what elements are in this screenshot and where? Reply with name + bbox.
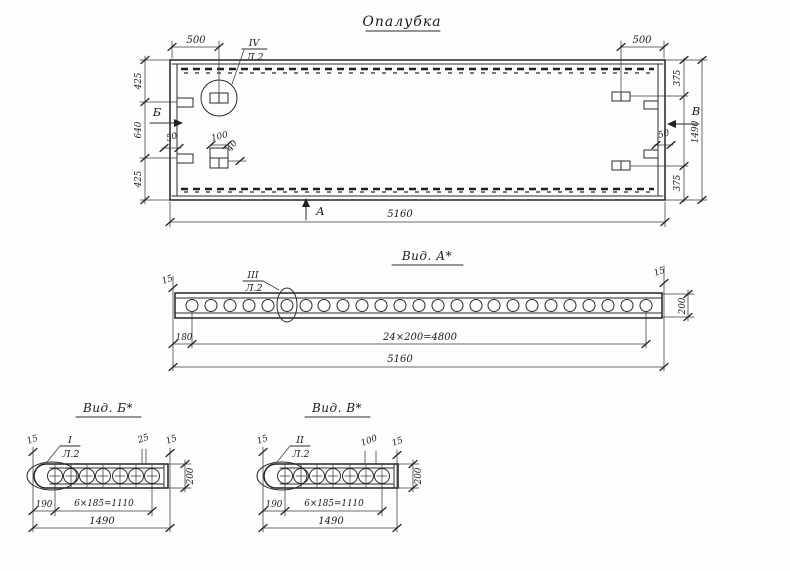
view-arrow-B: Б: [150, 105, 183, 127]
view-a: Вид. А* III Л.2 15: [161, 249, 694, 371]
right-edge-clamps: [612, 92, 658, 170]
detail-callout-IV: IV Л.2: [201, 38, 267, 116]
callout-number: III: [246, 270, 259, 281]
dim-label: 1490: [318, 516, 344, 527]
dim-label: 190: [36, 500, 53, 510]
callout-sheet-ref: Л.2: [246, 52, 264, 63]
dim-5160-plan: 5160: [166, 202, 669, 227]
dim-label: 1490: [89, 516, 115, 527]
view-arrow-label: А: [315, 204, 325, 218]
dim-label: 50: [657, 128, 671, 141]
dim-label: 15: [256, 433, 270, 446]
dim-chain-right: 375 375 1490: [631, 57, 707, 204]
strip-outline: [175, 293, 662, 318]
view-a-title: Вид. А*: [401, 249, 452, 263]
dim-label: 200: [414, 467, 424, 485]
dim-label: 25: [136, 432, 151, 446]
drawing-canvas: Опалубка: [0, 0, 790, 571]
dim-label: 180: [176, 333, 193, 343]
dim-label: 200: [678, 297, 688, 315]
dim-label: 5160: [387, 209, 413, 220]
callout-sheet-ref: Л.2: [62, 449, 80, 460]
dims-bottom: 190 6×185=1110 1490: [259, 485, 401, 532]
dim-label: 15: [653, 265, 667, 278]
dim-label: 375: [673, 174, 683, 191]
arrow-head: [667, 120, 676, 128]
dim-label: 15: [165, 433, 179, 446]
dim-label: 375: [673, 69, 683, 86]
view-b-title: Вид. Б*: [82, 401, 133, 415]
arrow-head: [174, 119, 183, 127]
callout-sheet-ref: Л.2: [292, 449, 310, 460]
left-edge-clamps: [177, 98, 193, 163]
dim-label: 425: [134, 170, 144, 188]
formwork-outline: [170, 60, 665, 200]
dim-label: 15: [26, 433, 40, 446]
dim-200-right: 200: [398, 460, 424, 492]
small-detail-100x40: 100 40: [207, 130, 246, 168]
dim-50-right: 50: [652, 128, 675, 148]
dim-label: 500: [186, 35, 206, 46]
detail-callout-III: III Л.2: [243, 270, 297, 322]
view-v-title: Вид. В*: [311, 401, 362, 415]
dim-label: 6×185=1110: [74, 499, 134, 509]
dim-15-left: 15: [161, 273, 177, 371]
view-arrow-V: В: [667, 104, 700, 128]
callout-number: IV: [248, 38, 261, 49]
dim-label: 200: [186, 467, 196, 485]
dim-label: 190: [266, 500, 283, 510]
dim-label: 640: [134, 121, 144, 138]
view-v: Вид. В* II Л.2 15 100: [256, 401, 424, 532]
callout-number: I: [67, 435, 72, 446]
dim-label: 100: [360, 434, 380, 449]
view-arrow-A: А: [302, 198, 325, 220]
dim-label: 5160: [387, 354, 413, 365]
dim-200-right: 200: [168, 460, 196, 492]
drawing-sheet: Опалубка: [0, 0, 790, 571]
dim-label: 15: [391, 435, 405, 448]
view-arrow-label: Б: [152, 105, 162, 119]
dim-label: 6×185=1110: [304, 499, 364, 509]
callout-number: II: [295, 435, 304, 446]
hole-row: [186, 300, 652, 312]
drawing-title: Опалубка: [362, 14, 441, 30]
dim-50-left: 50: [160, 131, 183, 151]
dim-label: 24×200=4800: [382, 332, 458, 343]
callout-sheet-ref: Л.2: [245, 283, 263, 294]
edge-hatching: [181, 69, 654, 192]
view-b: Вид. Б* I Л.2 15 25: [26, 401, 196, 532]
dim-label: 40: [225, 138, 240, 154]
plan-view: Опалубка: [134, 14, 707, 227]
dim-label: 500: [632, 35, 652, 46]
view-arrow-label: В: [691, 104, 700, 118]
dim-label: 100: [210, 130, 229, 144]
dims-bottom: 190 6×185=1110 1490: [29, 485, 174, 532]
dim-label: 425: [134, 72, 144, 90]
dims-bottom: 180 24×200=4800 5160: [169, 312, 668, 371]
dim-200-right: 200: [662, 290, 694, 321]
dim-500-right: 500: [617, 35, 668, 91]
